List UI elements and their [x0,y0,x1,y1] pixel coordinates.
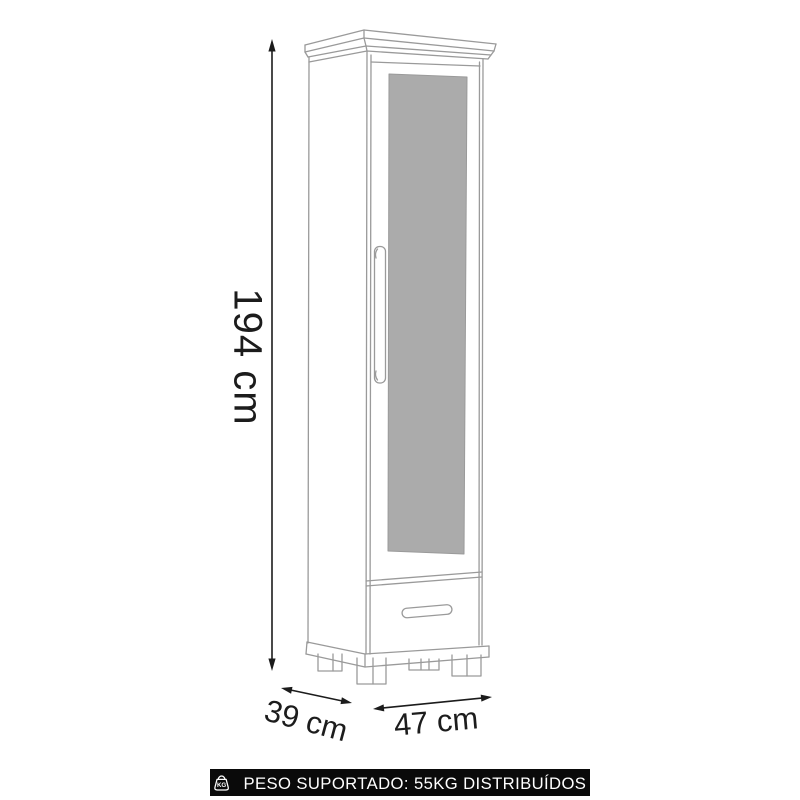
door-handle [375,247,386,384]
feet [318,654,481,684]
drawer-handle [402,604,453,618]
product-dimension-diagram: 194 cm 39 cm 47 cm KG PESO SUPORTADO: 55… [0,0,800,800]
height-dimension-label: 194 cm [225,288,270,425]
mirror-panel [388,74,467,554]
weight-capacity-banner: KG PESO SUPORTADO: 55KG DISTRIBUÍDOS [210,769,590,796]
weight-capacity-text: PESO SUPORTADO: 55KG DISTRIBUÍDOS [244,774,587,792]
svg-text:KG: KG [217,782,226,789]
cabinet-drawing [305,30,496,684]
cabinet-diagram [0,0,800,800]
width-dimension-label: 47 cm [392,700,479,743]
kg-weight-icon: KG [210,771,233,795]
drawer-gap-lines [366,572,482,586]
crown-molding [305,30,496,62]
